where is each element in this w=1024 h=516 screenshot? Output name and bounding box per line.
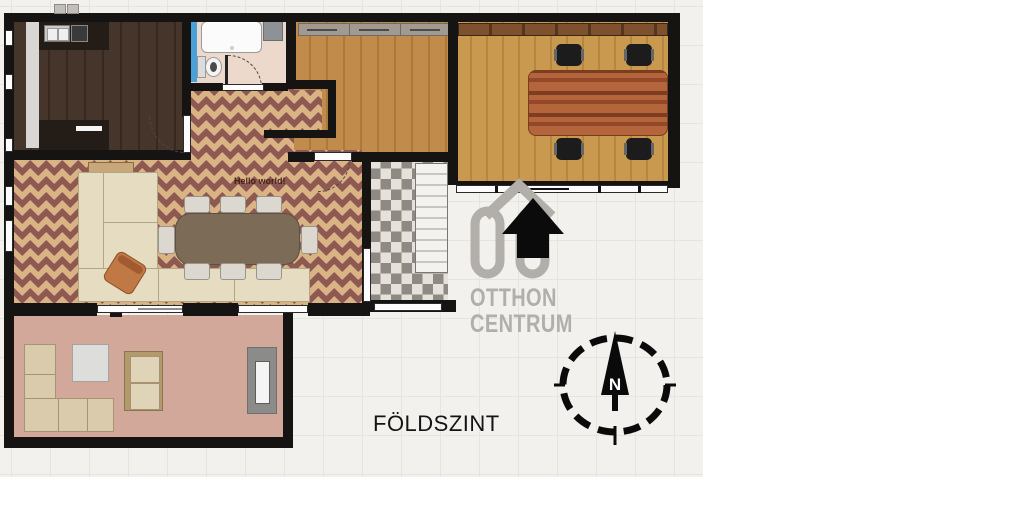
- counter-handle: [307, 29, 337, 31]
- sink-basin: [47, 28, 58, 41]
- staircase: [415, 163, 448, 273]
- conference-table: [528, 70, 668, 136]
- compass-north-label: N: [609, 375, 621, 394]
- sofa-cushion-line: [158, 269, 159, 301]
- wall-bathroom-bottom: [191, 83, 223, 91]
- sink-basin: [58, 28, 69, 41]
- toilet-bowl: [205, 57, 222, 77]
- office-chair: [556, 44, 582, 66]
- entry-interior-door-leaf: [363, 248, 371, 302]
- chair-armrest: [624, 49, 627, 61]
- wall-lounge-bottom: [4, 437, 293, 448]
- wall-lounge-right: [283, 305, 293, 448]
- office-chair: [556, 138, 582, 160]
- sofa-cushion-line: [87, 399, 88, 431]
- window: [5, 30, 13, 46]
- north-needle-stem: [612, 395, 618, 411]
- otthon-centrum-logo: [462, 178, 574, 286]
- floor-level-label: FÖLDSZINT: [373, 411, 500, 437]
- counter-handle: [410, 29, 440, 31]
- window: [5, 186, 13, 206]
- dining-table: [175, 213, 300, 265]
- sliding-door: [97, 305, 183, 313]
- sofa-cushion-line: [25, 374, 55, 375]
- wall-bathroom-bottom: [262, 83, 288, 91]
- bathroom-door-threshold: [222, 84, 264, 91]
- dining-chair: [220, 196, 246, 213]
- lounge-corner-sofa-seat: [24, 398, 114, 432]
- kitchen-counter-edge: [26, 22, 39, 148]
- wall-kitchen-right: [182, 13, 191, 117]
- bathtub-drain: [230, 46, 234, 50]
- chair-armrest: [624, 143, 627, 155]
- loveseat-cushion: [130, 356, 160, 383]
- chair-armrest: [581, 49, 584, 61]
- tv-screen: [255, 361, 270, 404]
- chair-armrest: [554, 143, 557, 155]
- wall-bathroom-right: [286, 13, 296, 88]
- window: [238, 305, 308, 313]
- entry-door-threshold: [374, 303, 442, 311]
- tv-cabinet: [247, 347, 277, 414]
- wall-living-bottom: [308, 303, 370, 316]
- wall-living-bottom: [183, 303, 238, 316]
- kitchen-lower-cabinet: [39, 120, 109, 152]
- kitchen-stove: [71, 25, 88, 42]
- dining-chair: [301, 226, 318, 254]
- chair-armrest: [651, 143, 654, 155]
- loveseat: [124, 351, 163, 411]
- sliding-door-rail: [138, 308, 182, 310]
- wall-living-bottom: [4, 303, 97, 316]
- kitchen-sink: [44, 25, 70, 42]
- sofa-cushion-line: [58, 399, 59, 431]
- bathtub: [201, 21, 262, 53]
- chimney-symbol: [54, 4, 66, 14]
- window-tick: [598, 186, 601, 193]
- room-note-text: Hello world!: [234, 176, 286, 186]
- counter-divider: [349, 24, 350, 35]
- dining-chair: [256, 196, 282, 213]
- wall-alcove-bottom: [264, 130, 336, 138]
- window: [5, 138, 13, 152]
- wall-middle-room-bottom: [288, 152, 314, 162]
- wall-office-right: [668, 13, 680, 188]
- floor-plan-canvas: Hello world!: [0, 0, 1024, 516]
- compass-rose-icon: N: [552, 323, 682, 453]
- logo-letter-o-icon: [475, 211, 500, 274]
- wall-kitchen-bottom: [4, 150, 191, 160]
- coffee-table: [72, 344, 109, 382]
- door-stop-mark: [110, 313, 122, 317]
- window-tick: [638, 186, 641, 193]
- dining-chair: [220, 263, 246, 280]
- chair-armrest: [651, 49, 654, 61]
- dishwasher: [76, 126, 102, 131]
- sofa-cushion-line: [103, 222, 159, 223]
- window: [5, 74, 13, 90]
- logo-arrow-roof-icon: [502, 198, 564, 234]
- office-sideboard-row: [458, 23, 668, 36]
- chimney-symbol: [67, 4, 79, 14]
- dining-chair: [184, 263, 210, 280]
- loveseat-cushion: [130, 383, 160, 410]
- office-chair: [626, 138, 652, 160]
- wall-office-left: [448, 13, 458, 185]
- dining-chair: [256, 263, 282, 280]
- logo-arrow-stem-icon: [517, 230, 549, 258]
- chair-armrest: [554, 49, 557, 61]
- shower-glass-panel: [190, 20, 197, 82]
- window: [5, 220, 13, 252]
- counter-divider: [400, 24, 401, 35]
- wall-top: [4, 13, 680, 22]
- office-chair: [626, 44, 652, 66]
- wall-counter-row: [298, 23, 450, 36]
- chair-armrest: [581, 143, 584, 155]
- dining-chair: [184, 196, 210, 213]
- dining-chair: [158, 226, 175, 254]
- counter-handle: [359, 29, 389, 31]
- watermark-brand-line1: OTTHON: [470, 284, 557, 313]
- middle-room-door: [314, 152, 352, 161]
- toilet-seat: [210, 62, 217, 72]
- shower-unit: [263, 21, 283, 41]
